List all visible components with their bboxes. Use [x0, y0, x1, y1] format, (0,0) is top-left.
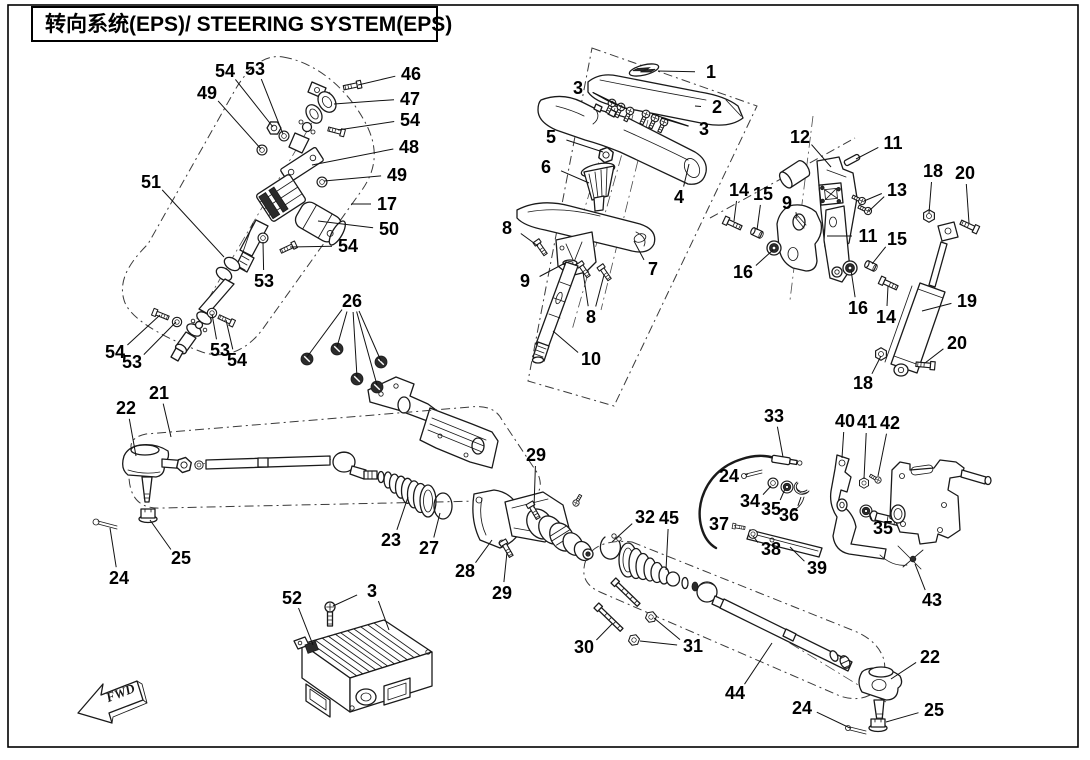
washer-part — [195, 461, 203, 469]
part-number-callout: 9 — [782, 193, 792, 213]
washer-part — [317, 177, 327, 187]
part-number-callout: 43 — [922, 590, 942, 610]
washer-part — [768, 478, 778, 488]
washer-part — [749, 530, 758, 539]
part-number-callout: 33 — [764, 406, 784, 426]
part-number-callout: 14 — [876, 307, 896, 327]
part-number-callout: 38 — [761, 539, 781, 559]
part-number-callout: 1 — [706, 62, 716, 82]
washer-part — [258, 233, 268, 243]
part-number-callout: 35 — [873, 518, 893, 538]
part-number-callout: 39 — [807, 558, 827, 578]
part-number-callout: 22 — [116, 398, 136, 418]
castle-nut-right — [869, 719, 887, 732]
part-number-callout: 30 — [574, 637, 594, 657]
part-number-callout: 36 — [779, 505, 799, 525]
part-number-callout: 15 — [887, 229, 907, 249]
part-number-callout: 46 — [401, 64, 421, 84]
washer-part — [279, 131, 289, 141]
castle-nut-left — [139, 509, 157, 523]
part-number-callout: 34 — [740, 491, 760, 511]
part-number-callout: 54 — [215, 61, 235, 81]
parts-catalog-page: 转向系统(EPS)/ STEERING SYSTEM(EPS) — [0, 0, 1090, 760]
part-number-callout: 13 — [887, 180, 907, 200]
part-number-callout: 3 — [573, 78, 583, 98]
nut-part — [860, 478, 869, 489]
part-number-callout: 20 — [955, 163, 975, 183]
washer-part — [172, 317, 181, 326]
part-number-callout: 52 — [282, 588, 302, 608]
leader-line — [695, 106, 701, 107]
part-number-callout: 32 — [635, 507, 655, 527]
part-number-callout: 54 — [227, 350, 247, 370]
part-number-callout: 25 — [924, 700, 944, 720]
part-number-callout: 54 — [338, 236, 358, 256]
part-number-callout: 48 — [399, 137, 419, 157]
part-number-callout: 24 — [792, 698, 812, 718]
part-number-callout: 23 — [381, 530, 401, 550]
part-number-callout: 54 — [400, 110, 420, 130]
mount-bolt — [331, 343, 343, 355]
part-number-callout: 41 — [857, 412, 877, 432]
part-number-callout: 27 — [419, 538, 439, 558]
leader-line — [263, 242, 264, 270]
part-number-callout: 21 — [149, 383, 169, 403]
nut-part — [876, 348, 887, 361]
part-number-callout: 25 — [171, 548, 191, 568]
part-number-callout: 31 — [683, 636, 703, 656]
part-number-callout: 12 — [790, 127, 810, 147]
part-number-callout: 24 — [719, 466, 739, 486]
bushing-part — [781, 481, 793, 493]
part-number-callout: 24 — [109, 568, 129, 588]
pitman-arm — [777, 205, 821, 271]
part-number-callout: 15 — [753, 184, 773, 204]
part-number-callout: 42 — [880, 413, 900, 433]
part-number-callout: 9 — [520, 271, 530, 291]
part-number-callout: 14 — [729, 180, 749, 200]
part-number-callout: 50 — [379, 219, 399, 239]
part-number-callout: 17 — [377, 194, 397, 214]
part-number-callout: 45 — [659, 508, 679, 528]
part-number-callout: 37 — [709, 514, 729, 534]
part-number-callout: 8 — [502, 218, 512, 238]
page-title: 转向系统(EPS)/ STEERING SYSTEM(EPS) — [45, 12, 452, 36]
part-number-callout: 5 — [546, 127, 556, 147]
part-number-callout: 20 — [947, 333, 967, 353]
part-number-callout: 44 — [725, 683, 745, 703]
part-number-callout: 6 — [541, 157, 551, 177]
leader-line — [734, 526, 735, 527]
part-number-callout: 53 — [122, 352, 142, 372]
part-number-callout: 11 — [883, 133, 902, 153]
part-number-callout: 4 — [674, 187, 684, 207]
part-number-callout: 16 — [848, 298, 868, 318]
part-number-callout: 3 — [699, 119, 709, 139]
part-number-callout: 28 — [455, 561, 475, 581]
part-number-callout: 47 — [400, 89, 420, 109]
part-number-callout: 53 — [245, 59, 265, 79]
part-number-callout: 10 — [581, 349, 601, 369]
mount-bolt — [375, 356, 387, 368]
part-number-callout: 29 — [526, 445, 546, 465]
part-number-callout: 18 — [923, 161, 943, 181]
part-number-callout: 7 — [648, 259, 658, 279]
mount-bolt — [371, 381, 383, 393]
part-number-callout: 11 — [858, 226, 877, 246]
part-number-callout: 2 — [712, 97, 722, 117]
part-number-callout: 40 — [835, 411, 855, 431]
part-number-callout: 49 — [197, 83, 217, 103]
part-number-callout: 18 — [853, 373, 873, 393]
part-number-callout: 16 — [733, 262, 753, 282]
exploded-diagram: 转向系统(EPS)/ STEERING SYSTEM(EPS) — [0, 0, 1090, 760]
title-box: 转向系统(EPS)/ STEERING SYSTEM(EPS) — [32, 7, 452, 41]
part-number-callout: 19 — [957, 291, 977, 311]
part-number-callout: 26 — [342, 291, 362, 311]
part-number-callout: 49 — [387, 165, 407, 185]
part-number-callout: 51 — [141, 172, 161, 192]
mount-bolt — [301, 353, 313, 365]
part-number-callout: 22 — [920, 647, 940, 667]
bushing-part — [843, 261, 857, 275]
part-number-callout: 8 — [586, 307, 596, 327]
part-number-callout: 53 — [254, 271, 274, 291]
part-number-callout: 3 — [367, 581, 377, 601]
part-number-callout: 29 — [492, 583, 512, 603]
